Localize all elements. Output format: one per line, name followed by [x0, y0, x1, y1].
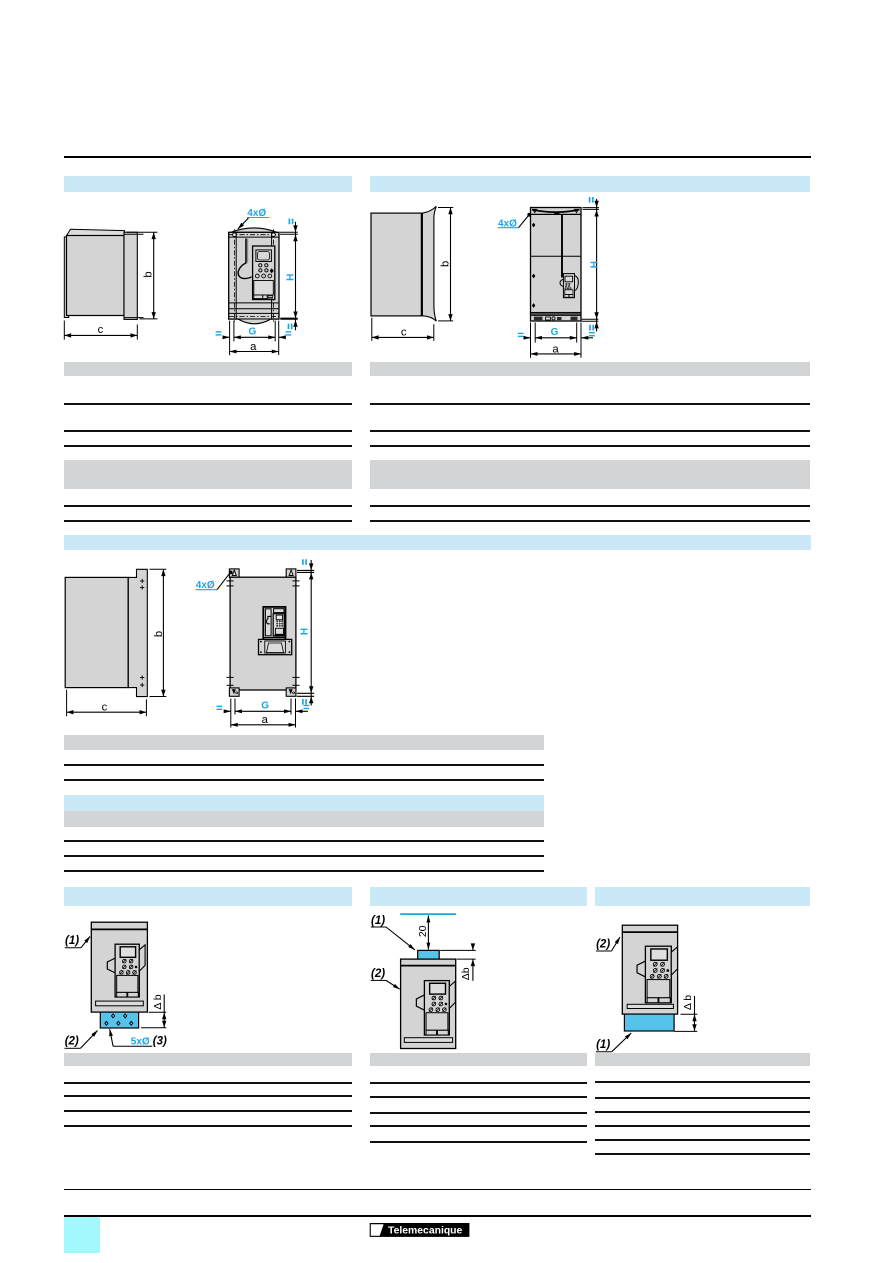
svg-text:20: 20: [417, 925, 429, 937]
svg-text:a: a: [262, 714, 269, 726]
svg-text:(2): (2): [596, 939, 610, 951]
svg-text:(1): (1): [596, 1039, 610, 1051]
svg-text:G: G: [261, 701, 269, 712]
svg-text:G: G: [551, 327, 559, 338]
svg-text:G: G: [249, 327, 257, 338]
svg-text:c: c: [98, 324, 104, 336]
svg-text:H: H: [589, 261, 600, 268]
svg-text:b: b: [440, 261, 452, 267]
svg-text:(2): (2): [65, 1036, 79, 1048]
svg-text:b: b: [153, 631, 165, 637]
svg-text:(2): (2): [371, 968, 385, 980]
svg-text:b: b: [142, 271, 154, 277]
svg-text:H: H: [299, 628, 310, 635]
svg-text:c: c: [401, 327, 407, 339]
svg-text:(1): (1): [65, 935, 79, 947]
svg-text:Δ b: Δ b: [152, 994, 164, 1009]
svg-text:a: a: [250, 341, 257, 353]
svg-text:(3): (3): [153, 1036, 167, 1048]
svg-text:Telemecanique: Telemecanique: [388, 1226, 463, 1237]
svg-text:H: H: [285, 274, 296, 281]
svg-text:c: c: [102, 702, 108, 714]
svg-text:(1): (1): [371, 915, 385, 927]
svg-text:Δ b: Δ b: [682, 995, 694, 1010]
svg-text:a: a: [552, 343, 559, 355]
svg-text:Δb: Δb: [460, 967, 472, 980]
